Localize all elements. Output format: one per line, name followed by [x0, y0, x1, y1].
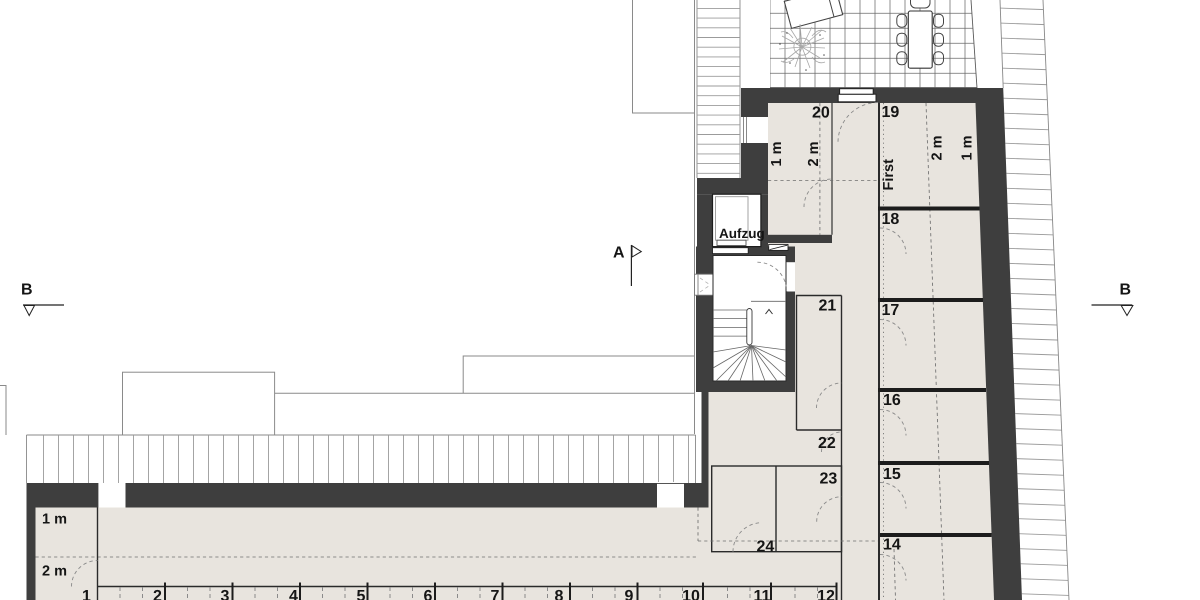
svg-text:6: 6 [424, 588, 433, 600]
svg-text:1 m: 1 m [769, 142, 785, 167]
svg-text:15: 15 [883, 466, 901, 483]
svg-text:14: 14 [883, 537, 901, 554]
svg-text:First: First [881, 159, 897, 191]
svg-text:17: 17 [882, 302, 900, 319]
svg-text:22: 22 [818, 435, 836, 452]
svg-text:B: B [21, 282, 33, 299]
svg-text:10: 10 [682, 588, 700, 600]
svg-text:3: 3 [221, 588, 230, 600]
svg-text:2 m: 2 m [42, 564, 67, 580]
svg-text:B: B [1120, 282, 1132, 299]
svg-text:11: 11 [754, 588, 771, 600]
svg-text:4: 4 [289, 588, 298, 600]
svg-text:Aufzug: Aufzug [719, 226, 765, 241]
svg-text:9: 9 [625, 588, 634, 600]
svg-text:5: 5 [357, 588, 366, 600]
svg-text:23: 23 [820, 471, 838, 488]
svg-text:20: 20 [812, 105, 830, 122]
svg-text:1: 1 [82, 588, 91, 600]
svg-text:8: 8 [555, 588, 564, 600]
svg-text:2: 2 [153, 588, 162, 600]
svg-text:21: 21 [819, 298, 837, 315]
svg-text:24: 24 [757, 539, 775, 556]
svg-text:18: 18 [882, 211, 900, 228]
svg-text:1 m: 1 m [960, 136, 976, 161]
svg-text:7: 7 [491, 588, 500, 600]
svg-text:A: A [613, 245, 625, 262]
svg-text:12: 12 [817, 588, 835, 600]
svg-text:19: 19 [882, 104, 900, 121]
svg-text:2 m: 2 m [806, 142, 822, 167]
svg-text:2 m: 2 m [930, 136, 946, 161]
svg-text:1 m: 1 m [42, 512, 67, 528]
svg-text:16: 16 [883, 392, 901, 409]
